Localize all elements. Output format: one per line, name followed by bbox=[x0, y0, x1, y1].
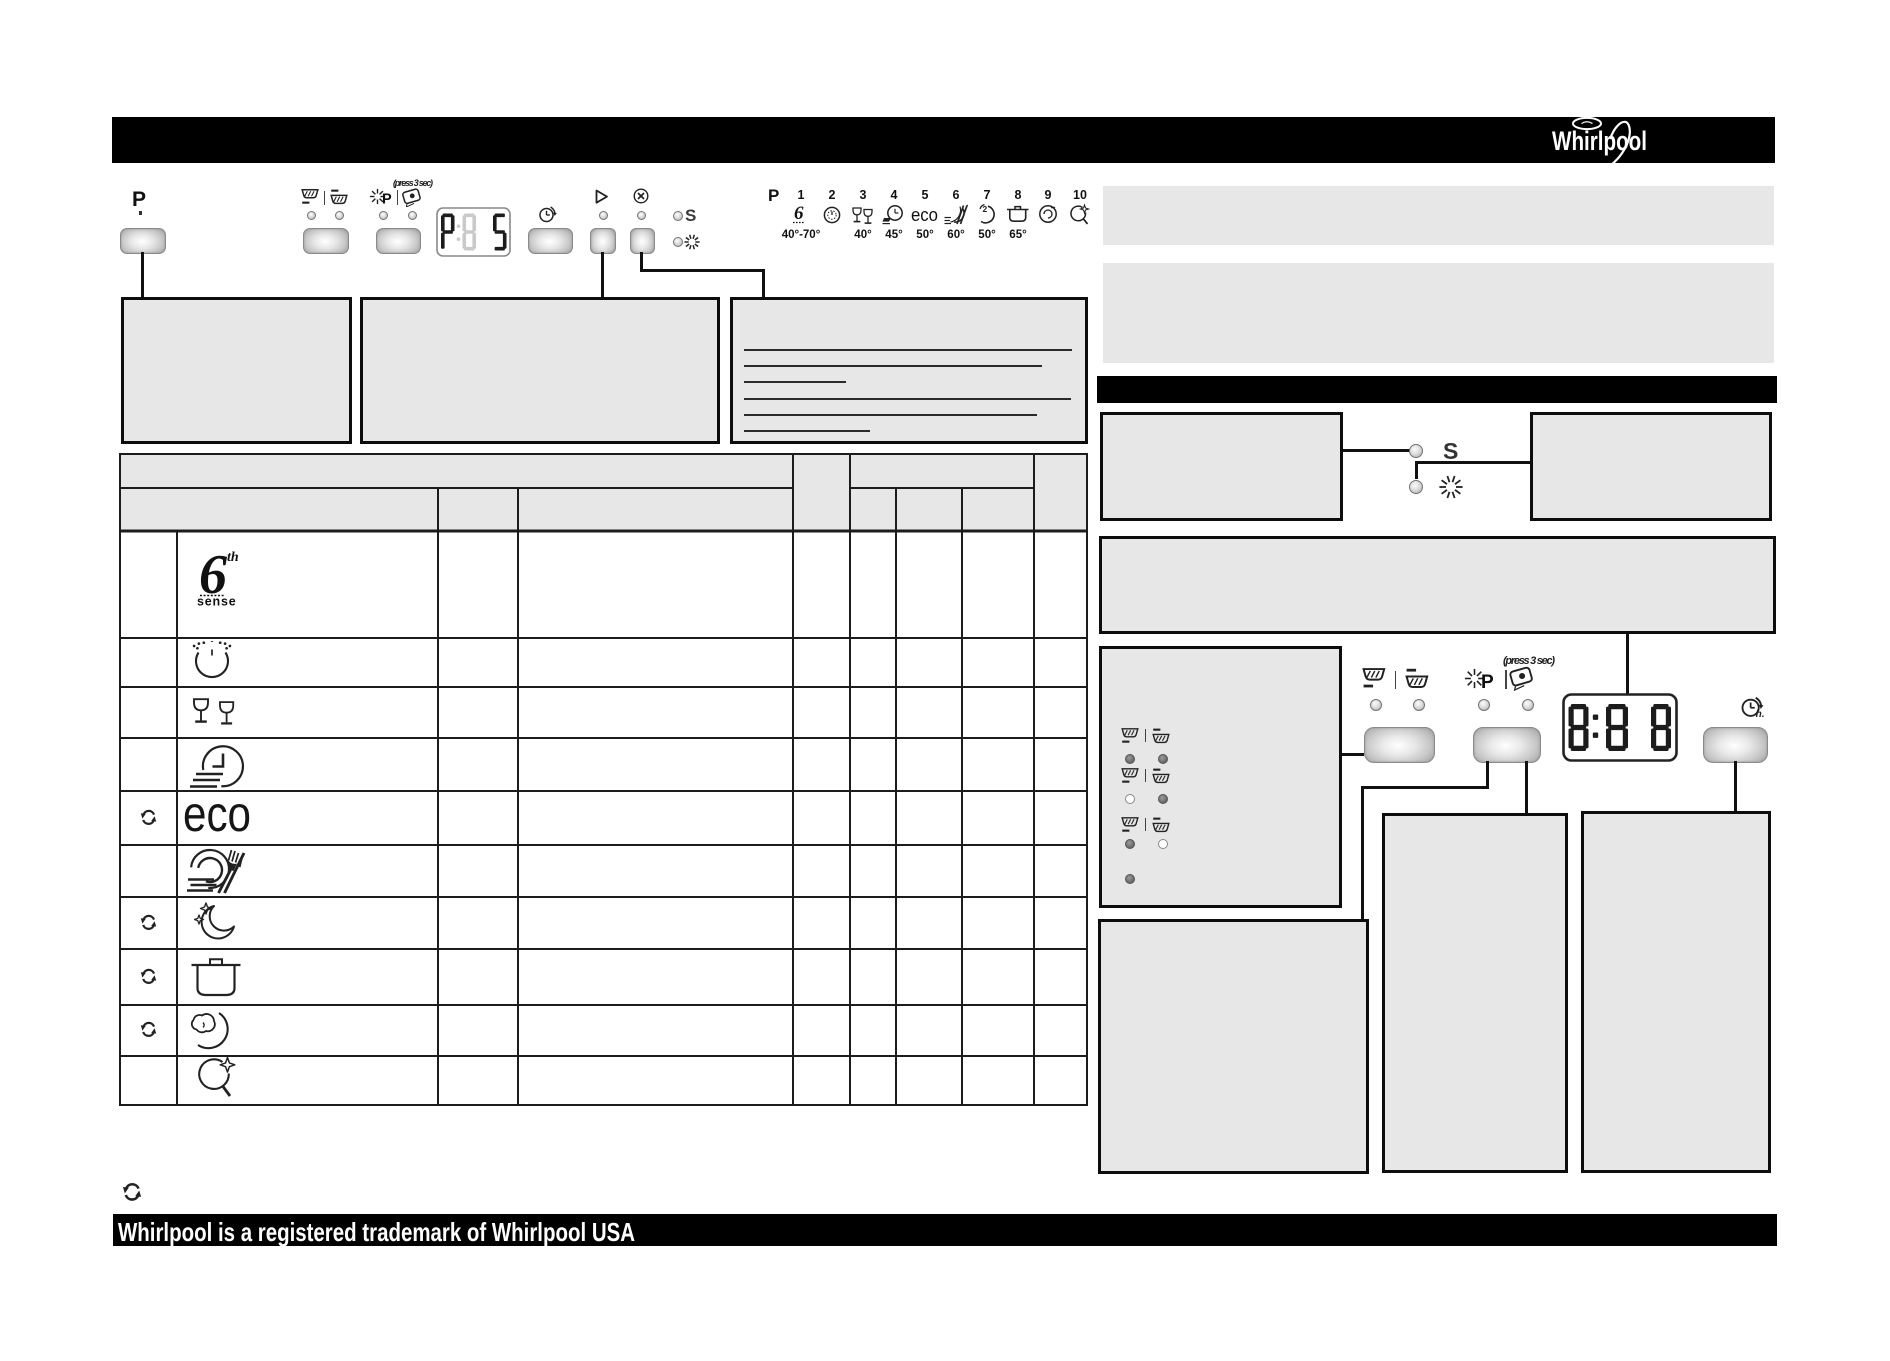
svg-text:sense: sense bbox=[197, 595, 236, 609]
svg-text:(press 3 sec): (press 3 sec) bbox=[393, 178, 433, 188]
svg-text:P: P bbox=[382, 192, 392, 208]
svg-text:th: th bbox=[227, 550, 239, 565]
svg-text:eco: eco bbox=[911, 205, 938, 225]
svg-text:eco: eco bbox=[183, 794, 251, 838]
svg-text:2: 2 bbox=[983, 204, 988, 214]
svg-text:Whirlpool: Whirlpool bbox=[1552, 126, 1647, 156]
svg-text:h.: h. bbox=[1756, 709, 1765, 720]
svg-text:P: P bbox=[1481, 672, 1494, 692]
svg-text:Whirlpool is a registered trad: Whirlpool is a registered trademark of W… bbox=[118, 1217, 635, 1247]
svg-text:6: 6 bbox=[794, 203, 804, 224]
svg-text:(press 3 sec): (press 3 sec) bbox=[1503, 655, 1555, 667]
